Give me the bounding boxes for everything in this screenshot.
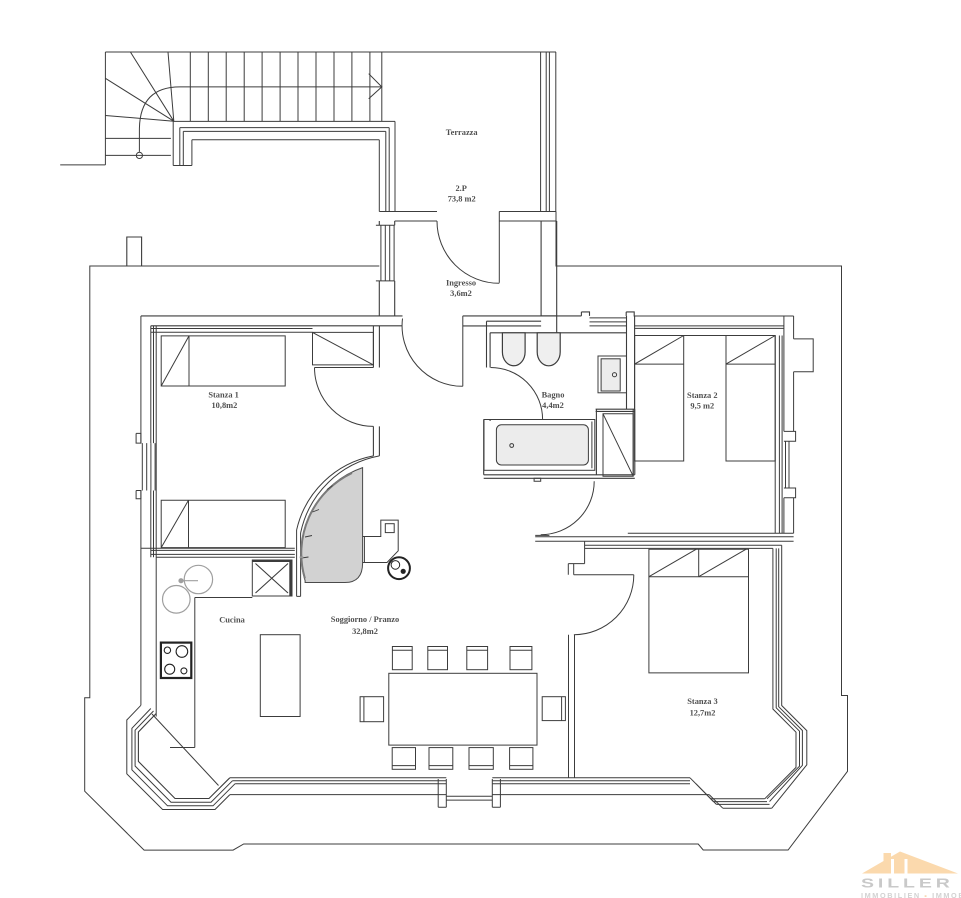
svg-text:10,8m2: 10,8m2 — [211, 401, 237, 410]
svg-text:Soggiorno / Pranzo: Soggiorno / Pranzo — [331, 615, 399, 624]
svg-text:4,4m2: 4,4m2 — [542, 401, 564, 410]
svg-text:Bagno: Bagno — [542, 391, 565, 400]
svg-text:Cucina: Cucina — [219, 616, 245, 625]
svg-text:Ingresso: Ingresso — [446, 279, 476, 288]
svg-text:12,7m2: 12,7m2 — [690, 709, 716, 718]
svg-text:9,5 m2: 9,5 m2 — [690, 402, 714, 411]
svg-text:Stanza 2: Stanza 2 — [687, 391, 717, 400]
svg-text:32,8m2: 32,8m2 — [352, 627, 378, 636]
svg-text:2.P: 2.P — [455, 184, 466, 193]
svg-text:Stanza 3: Stanza 3 — [687, 697, 717, 706]
svg-text:73,8 m2: 73,8 m2 — [448, 195, 476, 204]
svg-text:Terrazza: Terrazza — [446, 128, 479, 137]
svg-text:SILLER: SILLER — [861, 876, 954, 891]
svg-text:IMMOBILIEN - IMMOBILI: IMMOBILIEN - IMMOBILI — [861, 891, 961, 898]
svg-text:Stanza 1: Stanza 1 — [208, 391, 238, 400]
svg-text:3,6m2: 3,6m2 — [450, 289, 472, 298]
